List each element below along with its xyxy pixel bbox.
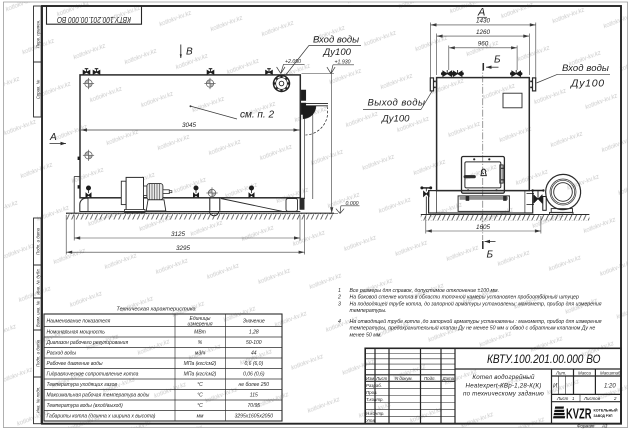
svg-text:МПа (кгс/см2): МПа (кгс/см2): [184, 361, 217, 367]
svg-text:КВТУ.100.201.00.000 ВО: КВТУ.100.201.00.000 ВО: [487, 352, 601, 366]
svg-text:1260: 1260: [476, 29, 491, 36]
svg-text:Изм: Изм: [366, 376, 374, 381]
svg-text:Разраб.: Разраб.: [366, 383, 382, 388]
svg-text:Номинальная мощность: Номинальная мощность: [47, 329, 106, 335]
svg-text:115: 115: [250, 392, 258, 398]
svg-text:см. п. 2: см. п. 2: [240, 110, 274, 121]
svg-text:3295х1605х2050: 3295х1605х2050: [235, 413, 274, 419]
svg-text:Н.контр.: Н.контр.: [366, 411, 385, 416]
svg-text:N докум.: N докум.: [395, 376, 413, 381]
svg-text:На боковой стенке котла в обла: На боковой стенке котла в области топочн…: [350, 294, 579, 301]
svg-text:Рабочее давление воды: Рабочее давление воды: [47, 361, 103, 367]
svg-text:Ду100: Ду100: [381, 114, 410, 125]
svg-text:°С: °С: [197, 403, 203, 409]
svg-text:3295: 3295: [176, 245, 191, 252]
svg-text:А: А: [49, 132, 57, 143]
svg-text:4: 4: [338, 319, 341, 325]
svg-text:Пров.: Пров.: [366, 390, 378, 395]
svg-text:Вход воды: Вход воды: [313, 35, 359, 46]
svg-text:измерения: измерения: [187, 321, 212, 327]
svg-text:Ду100: Ду100: [323, 47, 352, 58]
svg-text:+2.050: +2.050: [285, 59, 301, 65]
svg-text:Б: Б: [487, 250, 494, 261]
svg-text:На подводящей трубе котла, до: На подводящей трубе котла, до запорной а…: [350, 301, 602, 308]
svg-text:3125: 3125: [171, 231, 186, 238]
svg-text:960: 960: [478, 41, 489, 48]
svg-text:Утв.: Утв.: [366, 418, 376, 423]
svg-text:температуры.: температуры.: [350, 308, 387, 314]
svg-text:На отводящей трубе котла ,до з: На отводящей трубе котла ,до запорной ар…: [350, 318, 602, 325]
svg-text:А3: А3: [601, 424, 608, 429]
svg-text:ЗАВОД РЭП: ЗАВОД РЭП: [594, 414, 613, 418]
svg-text:Т.контр.: Т.контр.: [366, 397, 384, 402]
svg-text:1,28: 1,28: [249, 329, 259, 335]
svg-text:Перв. примен.: Перв. примен.: [36, 20, 41, 49]
svg-text:Лит.: Лит.: [555, 370, 566, 375]
svg-text:не более 250: не более 250: [239, 382, 270, 388]
svg-text:температуры, предохранительный: температуры, предохранительный клапан Ду…: [350, 325, 596, 332]
svg-text:Техническая характеристика: Техническая характеристика: [116, 307, 195, 313]
svg-text:Heatexpert-КВр-1,28-К(К): Heatexpert-КВр-1,28-К(К): [466, 382, 542, 389]
svg-text:Инв. № дубл.: Инв. № дубл.: [36, 268, 41, 294]
svg-text:Температура воды (вход/выход): Температура воды (вход/выход): [47, 403, 124, 409]
svg-text:Справ. №: Справ. №: [36, 79, 41, 99]
svg-text:менее 50 мм.: менее 50 мм.: [350, 332, 382, 338]
svg-text:1: 1: [338, 288, 341, 294]
svg-text:2: 2: [337, 295, 341, 301]
svg-text:Расход воды: Расход воды: [47, 350, 77, 356]
svg-text:В: В: [186, 47, 193, 58]
svg-text:Температура уходящих газов: Температура уходящих газов: [47, 382, 118, 388]
svg-text:КВТУ.100.201.00.000 ВО: КВТУ.100.201.00.000 ВО: [57, 15, 131, 24]
svg-text:0,06 (0,6): 0,06 (0,6): [243, 371, 265, 377]
svg-text:Подп. и дата: Подп. и дата: [36, 227, 41, 255]
svg-text:3045: 3045: [182, 122, 197, 129]
svg-text:Инв. № подл.: Инв. № подл.: [36, 387, 41, 414]
svg-text:мм: мм: [197, 413, 204, 419]
svg-text:Подп.: Подп.: [424, 376, 436, 381]
svg-text:И: И: [553, 384, 558, 390]
svg-text:Подп. и дата: Подп. и дата: [36, 339, 41, 367]
svg-text:44: 44: [251, 350, 257, 356]
svg-text:Дата: Дата: [442, 376, 455, 381]
svg-text:Листов: Листов: [583, 396, 601, 401]
svg-text:1:20: 1:20: [604, 384, 616, 390]
svg-text:Масса: Масса: [578, 370, 592, 375]
svg-text:1605: 1605: [476, 224, 491, 231]
svg-text:МВт: МВт: [194, 329, 206, 335]
svg-text:А: А: [477, 7, 485, 19]
svg-text:Диапазон рабочего регулировани: Диапазон рабочего регулирования: [46, 340, 129, 346]
svg-text:°С: °С: [197, 382, 203, 388]
svg-text:Наименование показателя: Наименование показателя: [47, 319, 111, 325]
svg-text:Вход воды: Вход воды: [562, 63, 609, 74]
svg-text:Лист: Лист: [556, 396, 569, 401]
svg-text:%: %: [198, 340, 203, 346]
svg-text:Масштаб: Масштаб: [600, 370, 621, 375]
svg-text:Значение: Значение: [243, 319, 265, 325]
svg-text:Гидравлическое сопротивление к: Гидравлическое сопротивление котла: [47, 371, 139, 377]
svg-text:KVZR: KVZR: [566, 407, 592, 423]
svg-text:Котел водогрейный: Котел водогрейный: [472, 374, 535, 381]
svg-text:Лист: Лист: [375, 376, 388, 381]
svg-text:3: 3: [338, 302, 341, 308]
svg-text:Б: Б: [494, 55, 501, 66]
svg-text:Взам. инв. №: Взам. инв. №: [36, 300, 41, 327]
svg-text:Формат: Формат: [577, 424, 595, 429]
svg-text:70/95: 70/95: [248, 403, 261, 409]
svg-text:КОТЕЛЬНЫЙ: КОТЕЛЬНЫЙ: [594, 409, 618, 413]
svg-text:по техническому заданию: по техническому заданию: [463, 390, 544, 397]
svg-text:Габариты котла (длинна х ширин: Габариты котла (длинна х ширина х высота…: [47, 413, 156, 419]
svg-text:°С: °С: [197, 392, 203, 398]
svg-text:1430: 1430: [476, 18, 491, 25]
svg-text:Все размеры для справок, допус: Все размеры для справок, допустимое откл…: [350, 288, 500, 294]
svg-text:м3/ч: м3/ч: [195, 350, 206, 356]
svg-text:Ду100: Ду100: [570, 78, 605, 90]
svg-text:Максимальная рабочая температу: Максимальная рабочая температура воды: [47, 392, 150, 398]
svg-text:50-100: 50-100: [246, 340, 262, 346]
svg-text:МПа (кгс/см2): МПа (кгс/см2): [184, 371, 217, 377]
svg-text:2: 2: [613, 396, 617, 401]
svg-text:Выход воды: Выход воды: [368, 98, 426, 109]
svg-text:0,6 (6,0): 0,6 (6,0): [244, 361, 263, 367]
